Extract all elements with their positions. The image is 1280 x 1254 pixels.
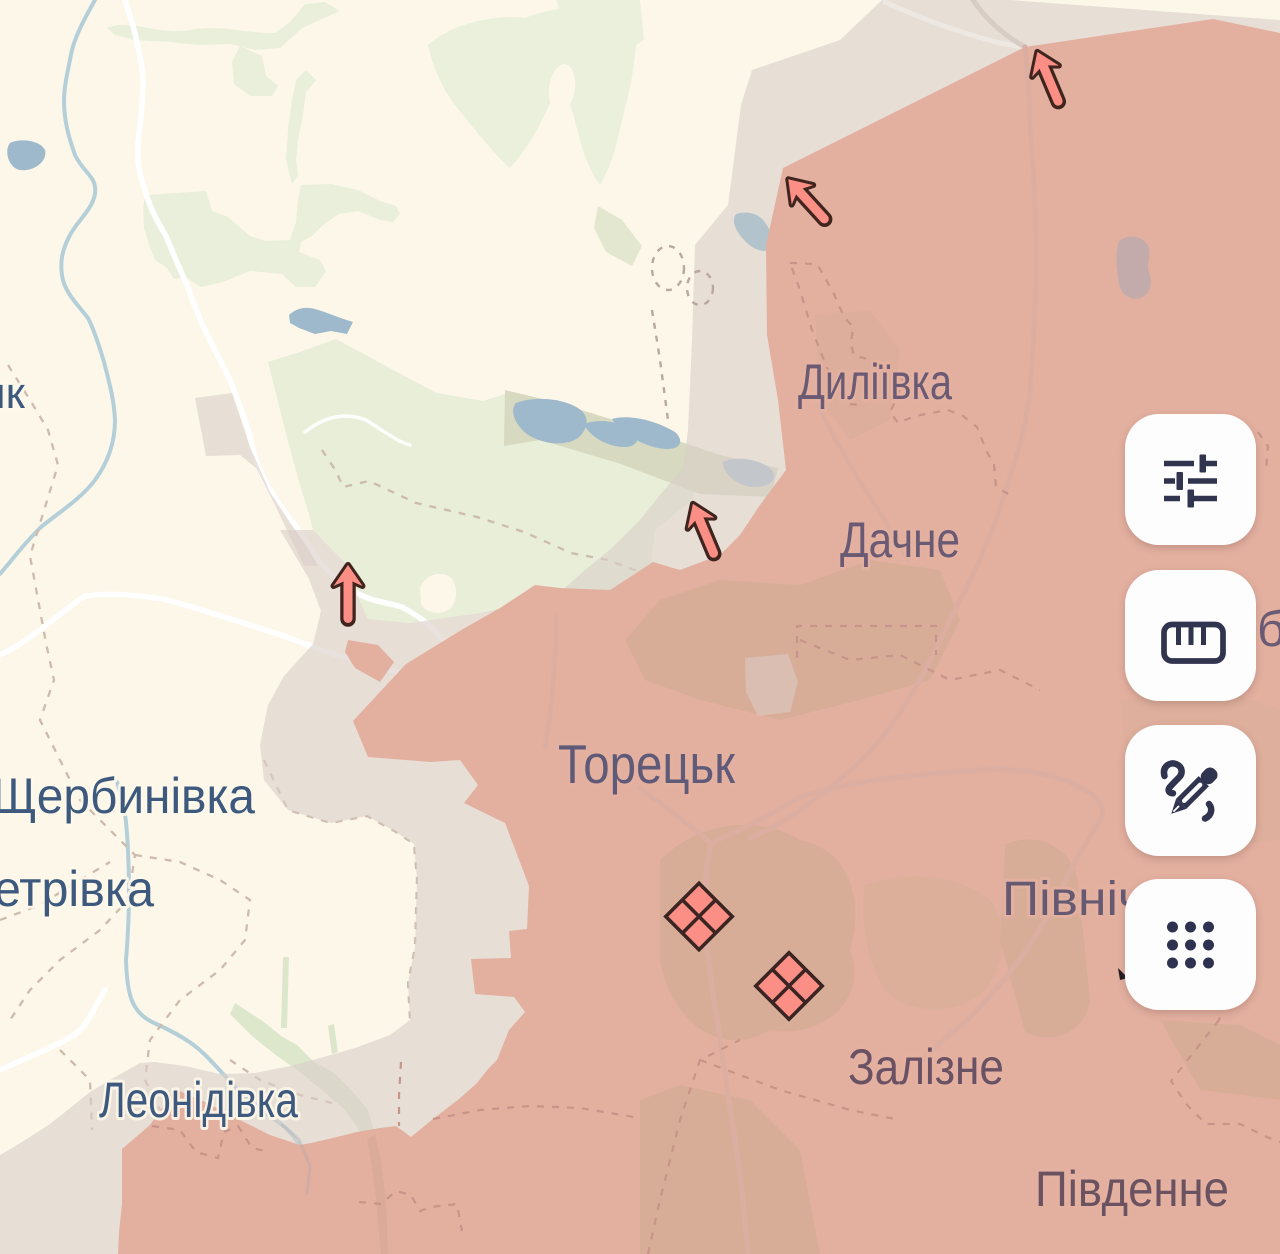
svg-text:Торецьк: Торецьк: [558, 733, 736, 795]
svg-text:Диліївка: Диліївка: [798, 354, 952, 410]
svg-text:етрівка: етрівка: [0, 861, 154, 917]
svg-text:Залізне: Залізне: [848, 1039, 1004, 1095]
svg-text:Щербинівка: Щербинівка: [0, 768, 255, 824]
svg-text:Південне: Південне: [1035, 1161, 1229, 1217]
svg-text:Леонідівка: Леонідівка: [99, 1072, 298, 1128]
svg-text:Дачне: Дачне: [840, 512, 960, 568]
svg-text:ик: ик: [0, 369, 26, 418]
svg-text:ба: ба: [1257, 601, 1280, 657]
